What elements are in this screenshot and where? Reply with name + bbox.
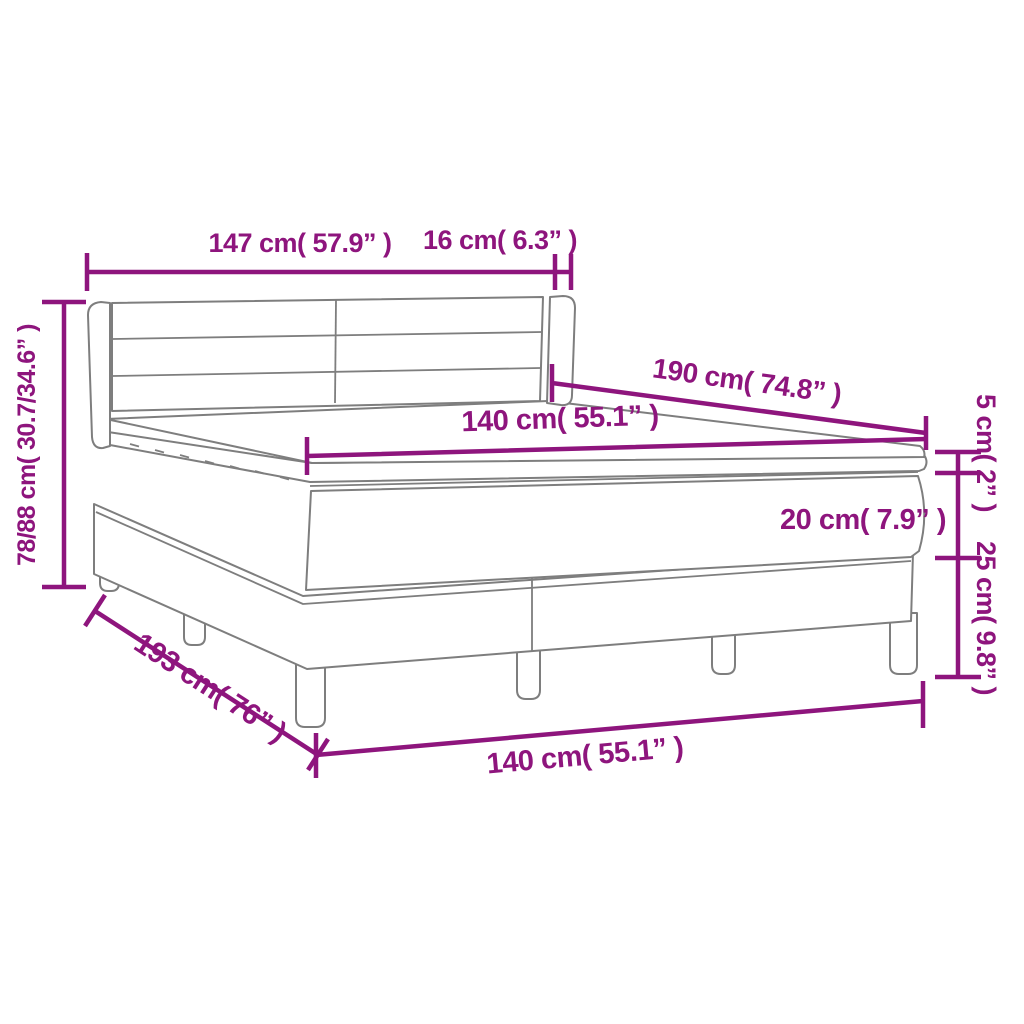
bed-dimension-diagram: 147 cm( 57.9” ) 16 cm( 6.3” ) 78/88 cm( … (0, 0, 1024, 1024)
label-base-height: 25 cm( 9.8” ) (971, 541, 1001, 695)
headboard-left-bolster (88, 302, 110, 448)
label-headboard-depth: 16 cm( 6.3” ) (423, 225, 577, 255)
label-mattress-height: 20 cm( 7.9” ) (780, 504, 946, 536)
label-overall-height: 78/88 cm( 30.7/34.6” ) (13, 324, 41, 566)
dim-line-headboard-width (87, 253, 571, 291)
dim-line-overall-height (42, 302, 86, 587)
headboard-panel (112, 297, 543, 411)
label-topper-height: 5 cm( 2” ) (971, 394, 1001, 512)
label-headboard-width: 147 cm( 57.9” ) (208, 228, 391, 258)
headboard-center-seam (335, 300, 336, 403)
diagram-canvas: 147 cm( 57.9” ) 16 cm( 6.3” ) 78/88 cm( … (0, 0, 1024, 1024)
